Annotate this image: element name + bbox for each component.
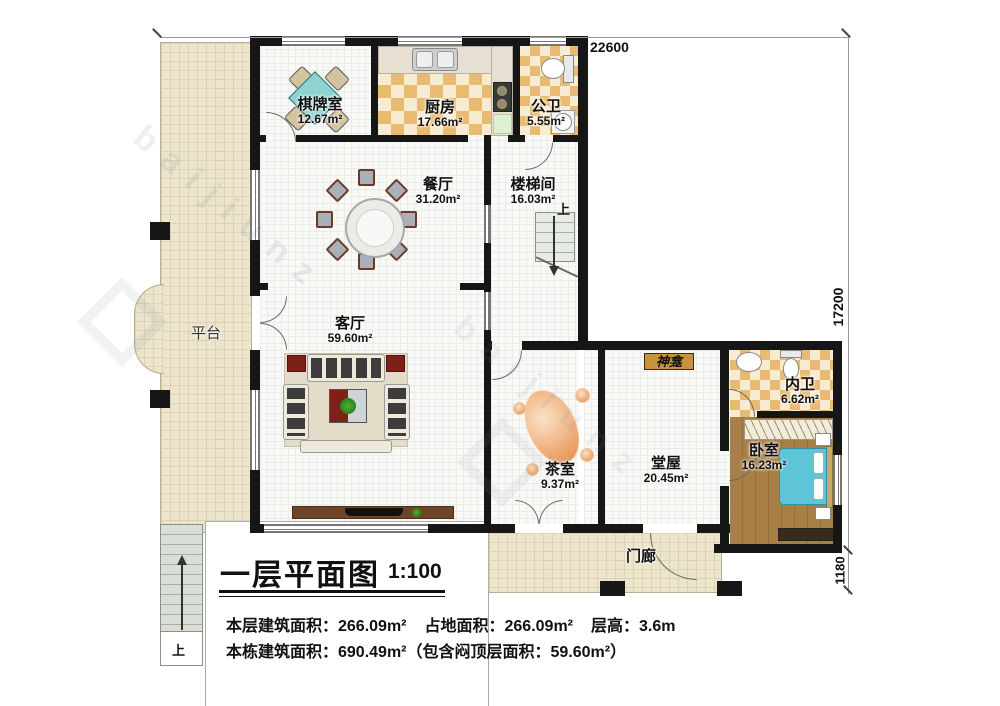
sink-basin	[416, 51, 433, 68]
window	[833, 455, 842, 505]
wall	[250, 135, 266, 142]
room-name: 内卫	[781, 377, 819, 393]
room-area: 9.37m²	[541, 478, 579, 491]
plant-icon	[412, 508, 421, 517]
wall	[757, 411, 833, 418]
column	[600, 581, 625, 596]
dimension-value-right: 17200	[830, 277, 846, 337]
wall	[250, 36, 260, 170]
column	[150, 390, 170, 408]
room-label-neiwei: 内卫 6.62m²	[781, 377, 819, 406]
wall	[250, 524, 264, 533]
room-name: 棋牌室	[297, 97, 342, 113]
pillow	[813, 478, 824, 500]
room-area: 6.62m²	[781, 393, 819, 406]
room-label-woshi: 卧室 16.23m²	[742, 443, 787, 472]
wall	[460, 283, 491, 290]
sofa	[384, 384, 410, 440]
kitchen-mat	[493, 114, 512, 134]
dimension-value-right-lower: 1180	[833, 546, 848, 596]
sofa-cushions	[388, 388, 406, 436]
wall	[371, 36, 378, 142]
bedroom-cabinet	[778, 528, 834, 541]
plan-scale: 1:100	[388, 560, 442, 584]
platform-floor	[160, 42, 252, 533]
tv-icon	[345, 508, 403, 516]
wall	[508, 135, 525, 142]
sink-icon	[736, 352, 762, 372]
title-underline-thin	[219, 596, 445, 597]
bed-headboard	[826, 446, 833, 508]
wall	[296, 135, 468, 142]
dimension-tick	[152, 28, 162, 38]
stairs-direction-line	[553, 216, 555, 268]
stairs-up-label: 上	[557, 199, 570, 218]
room-name: 平台	[191, 322, 221, 343]
floor-plan: 上	[0, 0, 1000, 706]
room-label-chufang: 厨房 17.66m²	[418, 100, 463, 129]
wall	[513, 36, 520, 142]
room-label-menlang: 门廊	[626, 549, 656, 565]
title-underline	[219, 590, 445, 593]
room-name: 门廊	[626, 549, 656, 565]
sofa	[283, 384, 309, 440]
room-area: 31.20m²	[416, 193, 461, 206]
wall	[578, 36, 588, 350]
dimension-line-top	[160, 37, 849, 38]
room-label-canting: 餐厅 31.20m²	[416, 177, 461, 206]
room-name: 餐厅	[416, 177, 461, 193]
nightstand	[815, 507, 831, 520]
room-name: 楼梯间	[510, 177, 555, 193]
room-label-loutijian: 楼梯间 16.03m²	[510, 177, 555, 206]
sink-basin	[437, 51, 454, 68]
room-name: 堂屋	[644, 456, 689, 472]
room-label-gongwei: 公卫 5.55m²	[527, 99, 565, 128]
sofa-cushions	[311, 358, 381, 378]
room-area: 20.45m²	[644, 472, 689, 485]
dimension-line-right	[848, 37, 849, 594]
window	[264, 524, 428, 533]
stat-floor-height: 层高：3.6m	[591, 618, 675, 635]
room-name: 客厅	[328, 316, 373, 332]
dining-table-ring	[356, 209, 394, 247]
window	[484, 205, 491, 243]
wall	[250, 350, 260, 390]
burner-icon	[497, 99, 507, 109]
room-name: 茶室	[541, 462, 579, 478]
sofa-cushions	[287, 388, 305, 436]
room-name: 公卫	[527, 99, 565, 115]
room-area: 5.55m²	[527, 115, 565, 128]
tea-stool	[575, 388, 590, 403]
wall	[720, 341, 729, 451]
wall	[720, 486, 729, 553]
interior-stairs	[535, 212, 575, 262]
room-label-pingtai: 平台	[191, 322, 221, 343]
shrine-cabinet: 神龛	[644, 353, 694, 370]
column	[150, 222, 170, 240]
burner-icon	[497, 86, 507, 96]
bench	[300, 440, 392, 453]
toilet-icon	[541, 58, 565, 79]
wall	[250, 283, 268, 290]
stairs-arrow-down-icon	[549, 266, 559, 276]
plant-icon	[340, 398, 356, 414]
wall	[833, 341, 842, 455]
sofa	[307, 354, 385, 382]
room-area: 16.03m²	[510, 193, 555, 206]
wall	[598, 350, 605, 524]
stairs-up-label: 上	[172, 640, 185, 659]
room-label-chashi: 茶室 9.37m²	[541, 462, 579, 491]
stats-line-2: 本栋建筑面积：690.49m²（包含闷顶层面积：59.60m²）	[226, 638, 626, 662]
tea-stool	[580, 448, 594, 462]
wall	[553, 135, 588, 142]
room-area: 17.66m²	[418, 116, 463, 129]
room-area: 59.60m²	[328, 332, 373, 345]
room-area: 12.67m²	[297, 113, 342, 126]
room-label-tangwu: 堂屋 20.45m²	[644, 456, 689, 485]
toilet-tank	[780, 350, 802, 358]
wall	[522, 341, 842, 350]
room-area: 16.23m²	[742, 459, 787, 472]
window	[484, 292, 491, 330]
platform-bay	[134, 284, 164, 374]
column	[717, 581, 742, 596]
stat-floor-area: 本层建筑面积：266.09m²	[226, 618, 407, 635]
dimension-value-top: 22600	[590, 39, 629, 55]
stairs-direction-line	[181, 564, 183, 630]
tea-stool	[513, 402, 526, 415]
stat-footprint-area: 占地面积：266.09m²	[425, 618, 574, 635]
chair	[358, 169, 375, 186]
stairs-arrow-up-icon	[177, 555, 187, 565]
side-table	[386, 355, 405, 372]
window	[250, 170, 260, 240]
side-table	[287, 355, 306, 372]
stats-line-1: 本层建筑面积：266.09m²占地面积：266.09m²层高：3.6m	[226, 612, 693, 636]
window	[250, 390, 260, 470]
room-label-qipaishi: 棋牌室 12.67m²	[297, 97, 342, 126]
wall	[484, 524, 515, 533]
tea-stool	[526, 463, 539, 476]
nightstand	[815, 433, 831, 446]
wall	[714, 544, 842, 553]
pillow	[813, 452, 824, 474]
chair	[316, 211, 333, 228]
wall	[563, 524, 643, 533]
room-label-keting: 客厅 59.60m²	[328, 316, 373, 345]
room-name: 厨房	[418, 100, 463, 116]
room-name: 卧室	[742, 443, 787, 459]
plan-title: 一层平面图	[220, 550, 380, 594]
